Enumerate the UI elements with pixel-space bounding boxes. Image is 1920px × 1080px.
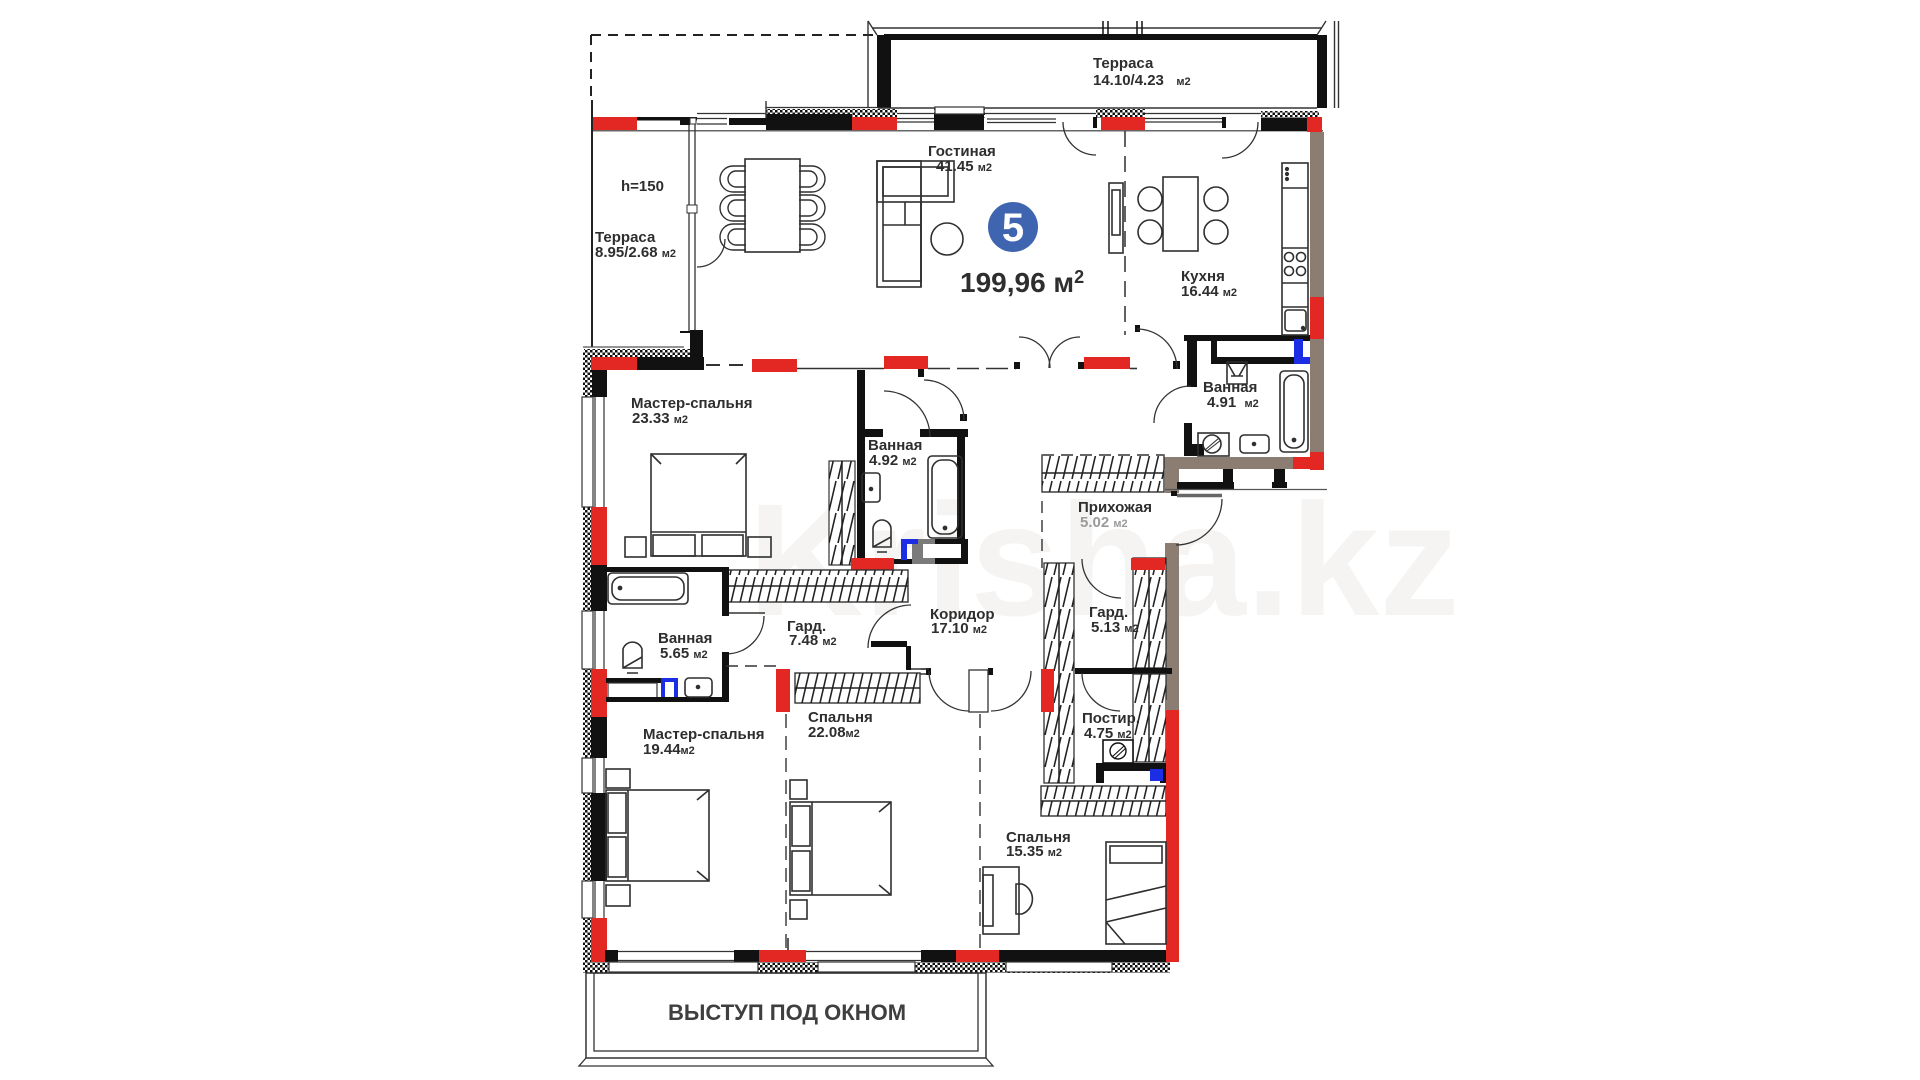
svg-text:199,96 м2: 199,96 м2	[960, 267, 1084, 298]
svg-text:5: 5	[1002, 206, 1024, 250]
svg-text:ВЫСТУП ПОД ОКНОМ: ВЫСТУП ПОД ОКНОМ	[668, 1000, 906, 1025]
svg-text:h=150: h=150	[621, 178, 664, 195]
svg-text:Терраса: Терраса	[1093, 55, 1154, 72]
svg-text:14.10/4.23 м2: 14.10/4.23 м2	[1093, 72, 1191, 89]
